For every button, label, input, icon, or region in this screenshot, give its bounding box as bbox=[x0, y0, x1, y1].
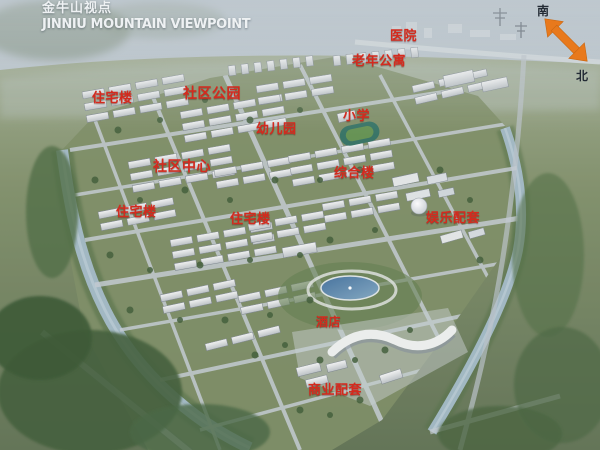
aerial-viewpoint-screenshot: 金牛山视点 JINNIU MOUNTAIN VIEWPOINT 南 北 医院 老… bbox=[0, 0, 600, 450]
map-label-primary-school: 小学 bbox=[343, 110, 370, 124]
map-label-community-center: 社区中心 bbox=[153, 160, 211, 175]
compass-arrow-icon bbox=[534, 8, 598, 72]
map-label-hospital: 医院 bbox=[390, 30, 417, 44]
map-label-residential-mid-center: 住宅楼 bbox=[230, 213, 271, 227]
map-label-hotel: 酒店 bbox=[316, 316, 341, 329]
masterplan-aerial-rendering bbox=[0, 0, 600, 450]
map-label-kindergarten: 幼儿园 bbox=[256, 123, 297, 137]
map-label-senior-apartments: 老年公寓 bbox=[352, 55, 406, 69]
map-label-commercial-amenities: 商业配套 bbox=[308, 384, 362, 398]
page-title-chinese: 金牛山视点 bbox=[42, 2, 250, 17]
map-label-community-park: 社区公园 bbox=[183, 87, 241, 102]
compass-north-label: 北 bbox=[576, 67, 588, 84]
map-label-residential-upper-left: 住宅楼 bbox=[92, 92, 133, 106]
map-label-entertainment-amenities: 娱乐配套 bbox=[426, 212, 480, 226]
color-cast bbox=[0, 0, 600, 450]
page-title-english: JINNIU MOUNTAIN VIEWPOINT bbox=[42, 17, 250, 33]
map-label-residential-mid-left: 住宅楼 bbox=[116, 206, 157, 220]
map-label-mixed-use-building: 综合楼 bbox=[334, 167, 375, 181]
title-block: 金牛山视点 JINNIU MOUNTAIN VIEWPOINT bbox=[42, 2, 250, 33]
